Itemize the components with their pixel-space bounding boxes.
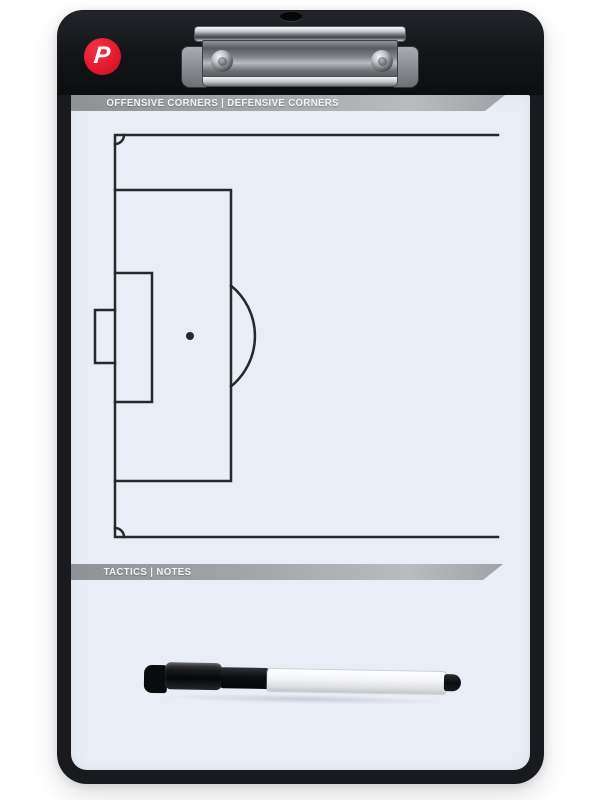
marker-collar [221,667,268,689]
marker-cap [165,662,222,690]
penalty-arc [231,286,255,387]
corner-arc-bottom [115,528,124,537]
clip-rivet-core [218,57,227,66]
corner-arc-top [115,135,124,144]
brand-logo: P [84,38,121,75]
clipboard-clip [181,24,419,90]
goal-box [95,310,115,363]
clip-rivet-left [211,50,233,72]
brand-logo-letter: P [93,44,112,68]
product-photo: OFFENSIVE CORNERS | DEFENSIVE CORNERS TA… [0,0,600,800]
pitch-outline [115,135,498,537]
clip-rivet-core [378,57,387,66]
goal-area [115,273,152,402]
clip-rivet-right [371,50,393,72]
dry-erase-marker [144,661,463,701]
marker-eraser-end [144,665,167,693]
penalty-spot [186,332,194,340]
penalty-area [115,190,231,481]
marker-barrel [267,669,446,694]
marker-tip-end [444,674,461,691]
clip-lip [202,76,398,87]
